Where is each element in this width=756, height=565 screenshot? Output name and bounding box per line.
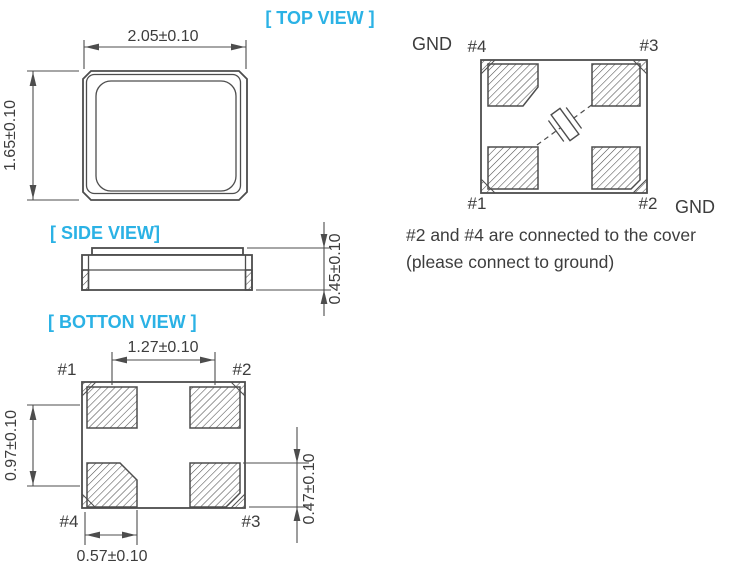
gnd-label-top: GND xyxy=(412,34,452,54)
arrowhead-right xyxy=(231,44,245,51)
bottom-pin-label-4: #4 xyxy=(60,512,79,531)
arrowhead-bottom xyxy=(30,185,37,199)
top-view-package-outline xyxy=(83,71,247,200)
layout-pin-label-1: #1 xyxy=(468,194,487,213)
drawing-svg: [ TOP VIEW ] 2.05±0.10 1.65±0.10 [ SIDE … xyxy=(0,0,756,565)
pitch-y-dimension-label: 0.97±0.10 xyxy=(3,410,20,481)
arrowhead-top xyxy=(30,72,37,86)
bottom-pad-2 xyxy=(190,387,240,428)
cover-ground-note: #2 and #4 are connected to the cover (pl… xyxy=(406,225,696,272)
bottom-view: [ BOTTON VIEW ] #1 #2 #4 #3 1.27±0.10 xyxy=(3,312,318,565)
package-dimension-drawing: [ TOP VIEW ] 2.05±0.10 1.65±0.10 [ SIDE … xyxy=(0,0,756,565)
arrowhead-right xyxy=(122,532,136,539)
arrowhead-up xyxy=(294,507,301,521)
side-view: [ SIDE VIEW] 0.45±0.10 xyxy=(50,222,344,316)
arrowhead-top xyxy=(30,406,37,420)
top-view-width-dimension: 2.05±0.10 xyxy=(84,28,246,69)
arrowhead-left xyxy=(85,44,99,51)
layout-pin-label-4: #4 xyxy=(468,37,487,56)
side-view-body xyxy=(82,255,252,290)
side-view-lid xyxy=(92,248,243,255)
pad-height-dimension-label: 0.47±0.10 xyxy=(301,453,318,524)
side-view-thickness-dimension: 0.45±0.10 xyxy=(247,222,344,316)
layout-pad-1 xyxy=(488,147,538,189)
layout-pin-label-2: #2 xyxy=(639,194,658,213)
bottom-view-pad-width-dimension: 0.57±0.10 xyxy=(76,510,147,565)
arrowhead-left xyxy=(86,532,100,539)
pin-layout: GND #4 #3 #1 #2 GND xyxy=(412,34,715,217)
bottom-pad-1 xyxy=(87,387,137,428)
side-view-terminal-right xyxy=(246,270,253,290)
height-dimension-label: 1.65±0.10 xyxy=(2,100,19,171)
note-line-2: (please connect to ground) xyxy=(406,252,614,272)
pitch-x-dimension-label: 1.27±0.10 xyxy=(127,339,198,356)
top-view-title: [ TOP VIEW ] xyxy=(265,8,374,28)
arrowhead-down xyxy=(294,449,301,463)
bottom-pin-label-1: #1 xyxy=(58,360,77,379)
bottom-view-title: [ BOTTON VIEW ] xyxy=(48,312,197,332)
bottom-pin-label-2: #2 xyxy=(233,360,252,379)
top-view-height-dimension: 1.65±0.10 xyxy=(2,71,79,200)
bottom-pin-label-3: #3 xyxy=(242,512,261,531)
bottom-view-pitch-y-dimension: 0.97±0.10 xyxy=(3,405,80,486)
bottom-pad-3 xyxy=(190,463,240,507)
gnd-label-bottom: GND xyxy=(675,197,715,217)
side-view-title: [ SIDE VIEW] xyxy=(50,223,160,243)
arrowhead-bottom xyxy=(30,471,37,485)
arrowhead-right xyxy=(200,357,214,364)
note-line-1: #2 and #4 are connected to the cover xyxy=(406,225,696,245)
thickness-dimension-label: 0.45±0.10 xyxy=(327,233,344,304)
layout-pad-2 xyxy=(592,147,640,189)
layout-pad-3 xyxy=(592,64,640,106)
pad-width-dimension-label: 0.57±0.10 xyxy=(76,548,147,565)
bottom-view-pitch-x-dimension: 1.27±0.10 xyxy=(112,339,215,385)
side-view-terminal-left xyxy=(82,270,89,290)
top-view: [ TOP VIEW ] 2.05±0.10 1.65±0.10 xyxy=(2,8,375,200)
layout-pin-label-3: #3 xyxy=(640,36,659,55)
arrowhead-left xyxy=(113,357,127,364)
width-dimension-label: 2.05±0.10 xyxy=(127,28,198,45)
